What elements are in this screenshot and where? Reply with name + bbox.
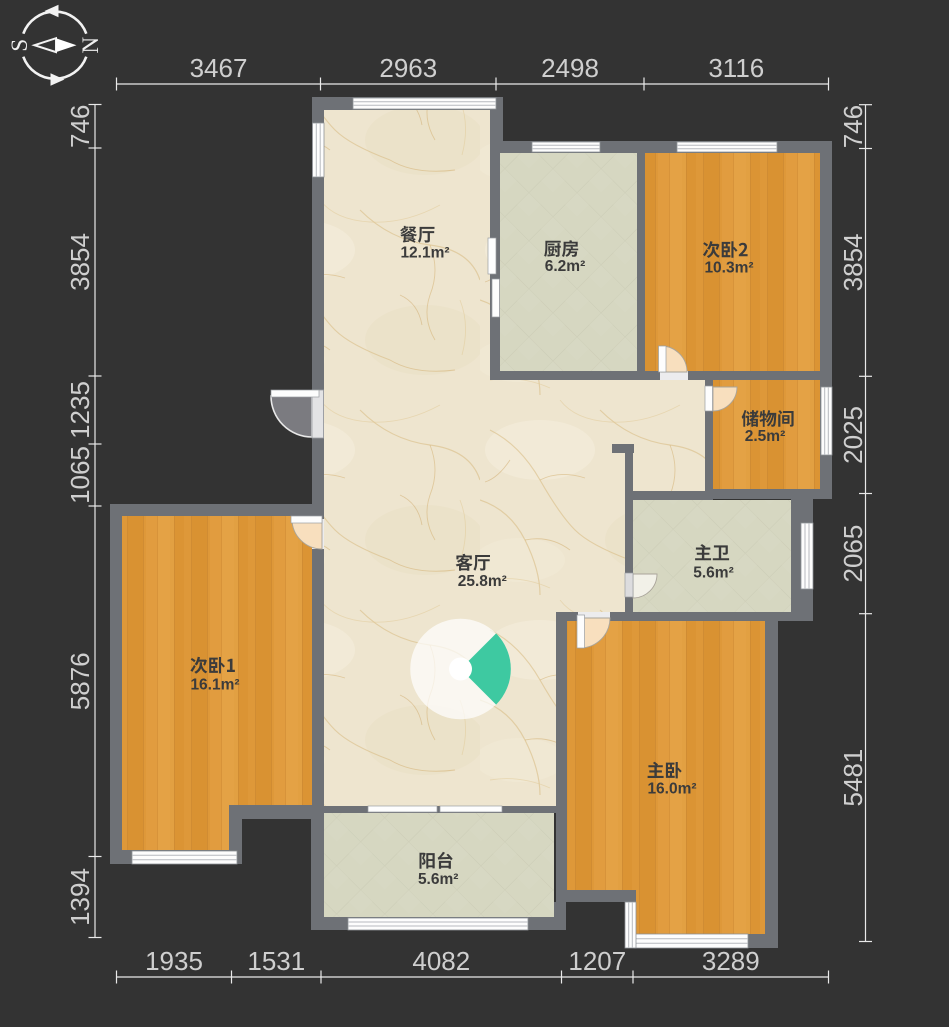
svg-text:2498: 2498 [541, 53, 599, 83]
svg-text:1394: 1394 [65, 868, 95, 926]
svg-text:1935: 1935 [145, 946, 203, 976]
svg-text:5.6m²: 5.6m² [693, 565, 734, 582]
svg-text:1065: 1065 [65, 446, 95, 504]
svg-text:S: S [7, 39, 32, 52]
svg-text:2963: 2963 [379, 53, 437, 83]
svg-text:1531: 1531 [247, 946, 305, 976]
svg-text:3289: 3289 [702, 946, 760, 976]
svg-text:3854: 3854 [838, 233, 868, 291]
svg-text:746: 746 [838, 105, 868, 148]
svg-text:3116: 3116 [708, 53, 764, 83]
svg-text:12.1m²: 12.1m² [400, 244, 449, 261]
svg-text:6.2m²: 6.2m² [545, 258, 586, 275]
svg-text:5.6m²: 5.6m² [418, 871, 459, 888]
svg-text:3467: 3467 [190, 53, 248, 83]
svg-text:16.0m²: 16.0m² [647, 780, 696, 797]
svg-text:16.1m²: 16.1m² [190, 676, 239, 693]
svg-text:746: 746 [65, 105, 95, 148]
svg-text:5481: 5481 [838, 749, 868, 807]
svg-text:N: N [78, 37, 103, 54]
svg-text:10.3m²: 10.3m² [704, 259, 753, 276]
svg-text:1235: 1235 [65, 381, 95, 439]
svg-text:4082: 4082 [412, 946, 470, 976]
svg-text:2025: 2025 [838, 406, 868, 464]
svg-text:2.5m²: 2.5m² [745, 428, 786, 445]
svg-text:3854: 3854 [65, 233, 95, 291]
svg-text:25.8m²: 25.8m² [458, 573, 507, 590]
svg-text:1207: 1207 [568, 946, 626, 976]
svg-text:2065: 2065 [838, 525, 868, 583]
svg-text:5876: 5876 [65, 652, 95, 710]
